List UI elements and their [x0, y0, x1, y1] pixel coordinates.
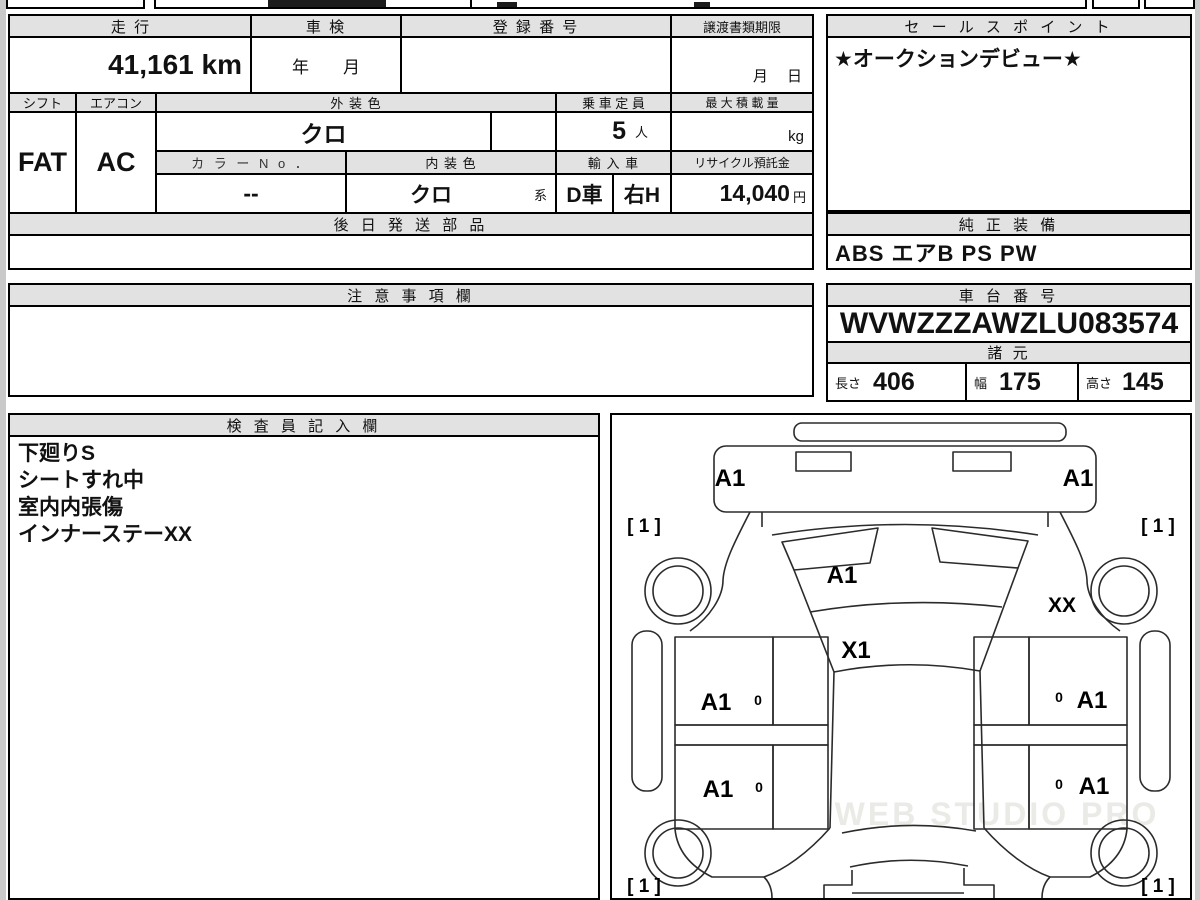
- damage-fender-right: XX: [1048, 594, 1076, 617]
- handle-mark-rear-left: 0: [755, 779, 763, 795]
- damage-door-rear-left: A1: [703, 776, 734, 803]
- shaken-value: 年 月: [250, 36, 402, 94]
- inspector-notes-body: 下廻りS シートすれ中 室内内張傷 インナーステーXX: [8, 435, 600, 900]
- shift-value: FAT: [8, 111, 77, 214]
- equipment-header: 純 正 装 備: [826, 212, 1192, 236]
- damage-bumper-front-right: A1: [1063, 465, 1094, 492]
- caution-notes-header: 注 意 事 項 欄: [8, 283, 814, 307]
- car-top-view-diagram: WEB STUDIO PRO: [612, 415, 1190, 898]
- recycle-deposit-value-cell: 14,040 円: [670, 173, 814, 214]
- dimension-length-cell: 長さ 406: [826, 362, 967, 402]
- shaken-header: 車 検: [250, 14, 402, 38]
- import-value-handle: 右H: [612, 173, 672, 214]
- car-diagram-box: WEB STUDIO PRO: [610, 413, 1192, 900]
- max-load-unit: kg: [788, 128, 804, 145]
- recycle-deposit-header: リサイクル預託金: [670, 150, 814, 175]
- interior-color-suffix: 系: [534, 185, 547, 204]
- interior-color-value-cell: クロ 系: [345, 173, 557, 214]
- tire-grade-front-right: [ 1 ]: [1141, 516, 1175, 537]
- damage-door-front-left: A1: [701, 689, 732, 716]
- tire-grade-rear-left: [ 1 ]: [627, 876, 661, 897]
- interior-color-header: 内 装 色: [345, 150, 557, 175]
- dimension-height-label: 高さ: [1086, 373, 1112, 392]
- registration-value: [400, 36, 672, 94]
- tire-grade-rear-right: [ 1 ]: [1141, 876, 1175, 897]
- inspector-notes-header: 検 査 員 記 入 欄: [8, 413, 600, 437]
- import-header: 輸 入 車: [555, 150, 672, 175]
- exterior-color-header: 外 装 色: [155, 92, 557, 113]
- rocker-right: [1140, 631, 1170, 791]
- color-no-value: --: [155, 173, 347, 214]
- clipped-top-row-cell: [6, 0, 145, 9]
- dimension-length-label: 長さ: [835, 373, 861, 392]
- sales-point-value: ★オークションデビュー★: [826, 36, 1192, 212]
- dimension-height-value: 145: [1122, 368, 1164, 397]
- import-value-domestic: D車: [555, 173, 614, 214]
- wheel-front-right: [1091, 558, 1157, 624]
- rocker-left: [632, 631, 662, 791]
- clipped-top-row-cell: [1092, 0, 1140, 9]
- rear-plate-bar: [794, 423, 1066, 441]
- capacity-value: 5: [612, 117, 626, 146]
- handle-mark-front-right: 0: [1055, 689, 1063, 705]
- color-no-header: カ ラ ー N o ．: [155, 150, 347, 175]
- chassis-number-header: 車 台 番 号: [826, 283, 1192, 307]
- handle-mark-front-left: 0: [754, 692, 762, 708]
- wheel-front-left: [645, 558, 711, 624]
- auction-sheet: 走 行 車 検 登 録 番 号 譲渡書類期限 41,161 km 年 月 月 日…: [0, 0, 1200, 900]
- dimension-length-value: 406: [873, 368, 915, 397]
- interior-color-value: クロ: [347, 175, 515, 212]
- dimension-width-cell: 幅 175: [965, 362, 1079, 402]
- bumper-inset-left: [796, 452, 851, 471]
- clipped-top-row-cell: [470, 0, 1087, 9]
- recycle-deposit-value: 14,040: [720, 180, 790, 207]
- bumper-inset-right: [953, 452, 1011, 471]
- clipped-text-remnant: [268, 0, 386, 7]
- clipped-top-row-cell: [1144, 0, 1195, 9]
- clipped-text-remnant: [497, 2, 517, 7]
- inspector-note-line: 下廻りS: [18, 440, 590, 467]
- later-parts-header: 後 日 発 送 部 品: [8, 212, 814, 236]
- shift-header: シフト: [8, 92, 77, 113]
- dimension-width-value: 175: [999, 368, 1041, 397]
- sales-point-header: セ ー ル ス ポ イ ン ト: [826, 14, 1192, 38]
- max-load-value-cell: kg: [670, 111, 814, 152]
- damage-door-rear-right: A1: [1079, 773, 1110, 800]
- capacity-unit: 人: [635, 122, 648, 141]
- dimensions-header: 諸 元: [826, 341, 1192, 364]
- transfer-docs-value: 月 日: [670, 36, 814, 94]
- handle-mark-rear-right: 0: [1055, 776, 1063, 792]
- inspector-note-line: インナーステーXX: [18, 521, 590, 548]
- dimension-height-cell: 高さ 145: [1077, 362, 1192, 402]
- mileage-value: 41,161 km: [8, 36, 254, 94]
- damage-hood: A1: [827, 562, 858, 589]
- aircon-value: AC: [75, 111, 157, 214]
- tire-grade-front-left: [ 1 ]: [627, 516, 661, 537]
- clipped-text-remnant: [694, 2, 710, 7]
- damage-windshield: X1: [841, 637, 870, 664]
- equipment-value: ABS エアB PS PW: [826, 234, 1192, 270]
- chassis-number-value: WVWZZZAWZLU083574: [826, 305, 1192, 343]
- caution-notes-value: [8, 305, 814, 397]
- exterior-color-empty-cell: [490, 111, 557, 152]
- capacity-header: 乗 車 定 員: [555, 92, 672, 113]
- inspector-note-line: シートすれ中: [18, 467, 590, 494]
- front-bumper: [714, 446, 1096, 512]
- registration-header: 登 録 番 号: [400, 14, 672, 38]
- damage-door-front-right: A1: [1077, 687, 1108, 714]
- recycle-deposit-unit: 円: [793, 187, 806, 212]
- inspector-note-line: 室内内張傷: [18, 494, 590, 521]
- capacity-value-cell: 5 人: [555, 111, 672, 152]
- later-parts-value: [8, 234, 814, 270]
- mileage-header: 走 行: [8, 14, 254, 38]
- dimension-width-label: 幅: [974, 373, 987, 392]
- damage-bumper-front-left: A1: [715, 465, 746, 492]
- exterior-color-value: クロ: [155, 111, 492, 152]
- transfer-docs-header: 譲渡書類期限: [670, 14, 814, 38]
- max-load-header: 最 大 積 載 量: [670, 92, 814, 113]
- aircon-header: エアコン: [75, 92, 157, 113]
